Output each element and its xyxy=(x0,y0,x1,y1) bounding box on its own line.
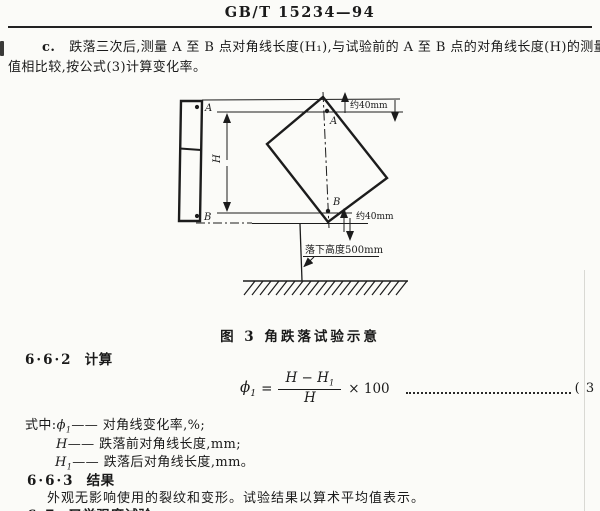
where-desc-phi: —— 对角线变化率,%; xyxy=(71,418,205,433)
formula-numerator: H − H1 xyxy=(278,371,341,390)
formula-phi: ϕ1 xyxy=(240,378,256,399)
drop-height-line xyxy=(300,224,302,281)
paragraph-c-line1: c.跌落三次后,测量 A 至 B 点对角线长度(H₁),与试验前的 A 至 B … xyxy=(42,36,600,55)
paragraph-c-text1: 跌落三次后,测量 A 至 B 点对角线长度(H₁),与试验前的 A 至 B 点的… xyxy=(69,40,600,55)
where-desc-h: —— 跌落前对角线长度,mm; xyxy=(68,437,241,452)
point-a-label-diamond: A xyxy=(329,116,337,127)
paragraph-c-line2: 值相比较,按公式(3)计算变化率。 xyxy=(8,56,206,75)
formula-3: ϕ1 = H − H1 H × 100 ( 3 ) xyxy=(240,371,600,407)
where-desc-h1: —— 跌落后对角线长度,mm。 xyxy=(72,455,254,470)
section-calc-heading: 6·6·2计算 xyxy=(25,348,113,368)
where-sym-h1: H1 xyxy=(55,455,72,470)
point-b-marker-left xyxy=(195,214,199,218)
corner-drop-test-diagram: A B H A B 约40mm 约40mm 落下高度500mm xyxy=(150,86,450,301)
apex-level-line xyxy=(202,99,400,100)
where-sym-h: H xyxy=(56,437,68,452)
where-row-phi: 式中:ϕ1—— 对角线变化率,%; xyxy=(25,414,205,435)
scan-artifact-left xyxy=(0,41,4,56)
point-b-label-diamond: B xyxy=(332,197,340,208)
bottom-dim-label: 约40mm xyxy=(356,210,394,222)
section-calc-number: 6·6·2 xyxy=(25,352,73,368)
header-rule xyxy=(8,26,592,28)
standard-number-header: GB/T 15234—94 xyxy=(0,4,600,21)
h-dimension-label: H xyxy=(212,154,223,164)
point-a-marker-diamond xyxy=(325,109,329,113)
document-page: GB/T 15234—94 c.跌落三次后,测量 A 至 B 点对角线长度(H₁… xyxy=(0,0,600,511)
point-a-marker-left xyxy=(195,105,199,109)
point-a-label-left: A xyxy=(204,103,212,114)
formula-fraction: H − H1 H xyxy=(278,371,341,407)
formula-denominator: H xyxy=(304,390,316,407)
ground-hatching xyxy=(244,281,407,295)
clause-label: c. xyxy=(42,40,55,55)
section-calc-title: 计算 xyxy=(85,352,113,368)
section-result-heading: 6·6·3结果 xyxy=(27,469,115,489)
top-dim-label: 约40mm xyxy=(350,99,388,111)
formula-multiplier: × 100 xyxy=(348,381,389,397)
point-b-marker-diamond xyxy=(326,209,330,213)
equation-number: ( 3 ) xyxy=(575,381,600,396)
figure-caption: 图 3 角跌落试验示意 xyxy=(0,325,600,345)
specimen-side-view xyxy=(179,101,202,221)
dotted-leader xyxy=(406,383,571,394)
drop-height-leader-arrow xyxy=(304,257,314,267)
where-intro: 式中: xyxy=(25,418,57,433)
where-sym-phi: ϕ1 xyxy=(57,418,72,433)
specimen-divider-line xyxy=(180,149,201,151)
drop-height-label: 落下高度500mm xyxy=(305,243,384,256)
section-next-heading: 6·7叉举强度试验 xyxy=(27,504,153,511)
point-b-label-left: B xyxy=(203,212,211,223)
tilted-specimen-diamond xyxy=(267,97,387,222)
formula-equals: = xyxy=(261,381,272,397)
